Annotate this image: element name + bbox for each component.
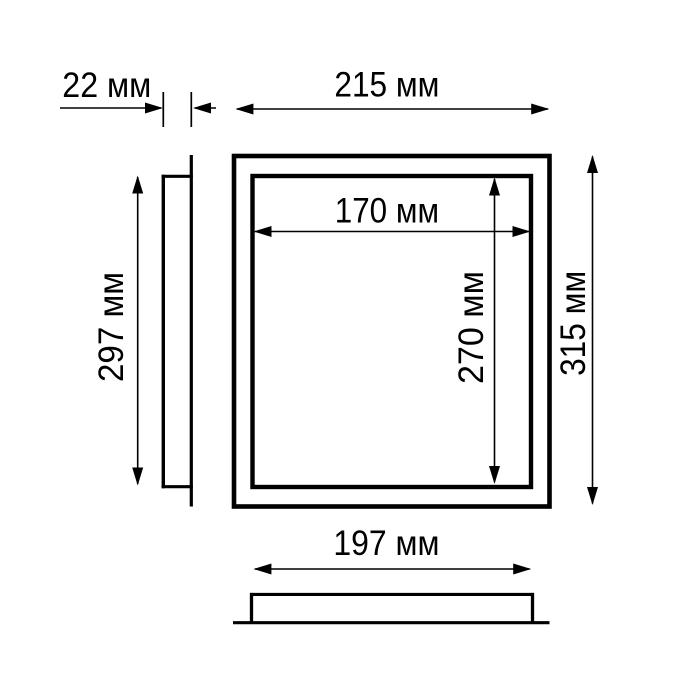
svg-text:22 мм: 22 мм (62, 66, 151, 105)
svg-text:315 мм: 315 мм (554, 271, 593, 376)
svg-text:270 мм: 270 мм (452, 271, 491, 384)
svg-text:170 мм: 170 мм (335, 192, 439, 231)
svg-text:215 мм: 215 мм (334, 66, 439, 105)
svg-text:197 мм: 197 мм (333, 524, 439, 563)
svg-text:297 мм: 297 мм (92, 272, 131, 382)
